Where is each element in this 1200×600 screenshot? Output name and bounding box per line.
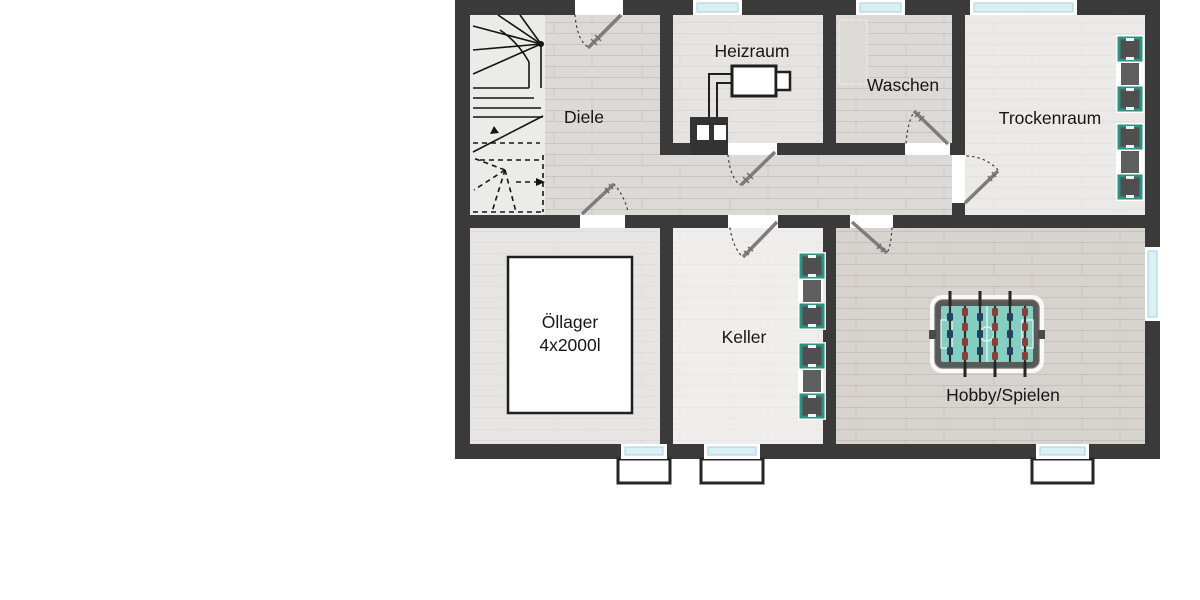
- wall-oellager-keller: [660, 228, 673, 444]
- exterior-wall-left: [455, 0, 470, 459]
- light-well-oellager: [618, 459, 670, 483]
- window-top-waschen: [856, 0, 905, 15]
- appliance-icon: [1119, 126, 1141, 148]
- window-bottom-keller: [704, 444, 760, 459]
- window-top-trockenraum: [970, 0, 1077, 15]
- wall-waschen-trockenraum: [952, 15, 965, 153]
- room-label-diele: Diele: [564, 107, 604, 127]
- appliance-group-keller-1: [798, 252, 826, 330]
- window-bottom-oellager: [621, 444, 667, 459]
- appliance-icon: [801, 395, 823, 417]
- wall-heizraum-waschen: [823, 15, 836, 155]
- entrance-opening: [575, 0, 623, 15]
- window-top-heizraum: [693, 0, 742, 15]
- wall-diele-heizraum: [660, 15, 673, 155]
- window-bottom-hobby: [1036, 444, 1089, 459]
- waschen-appliance-icon: [839, 20, 867, 84]
- foosball-table-icon: [929, 291, 1045, 377]
- wall-hall-bottom-4: [893, 215, 1145, 228]
- wall-hall-bottom-1: [470, 215, 580, 228]
- wall-hall-top-2: [777, 143, 905, 155]
- room-label-heizraum: Heizraum: [715, 41, 790, 61]
- room-label-keller: Keller: [722, 327, 767, 347]
- appliance-icon: [1121, 151, 1139, 173]
- wall-hall-bottom-2: [625, 215, 728, 228]
- room-label-hobby: Hobby/Spielen: [946, 385, 1060, 405]
- wall-hall-bottom-3: [778, 215, 850, 228]
- exterior-wall-right: [1145, 0, 1160, 459]
- appliance-icon: [1119, 38, 1141, 60]
- appliance-icon: [801, 305, 823, 327]
- appliance-icon: [1121, 63, 1139, 85]
- appliance-icon: [801, 345, 823, 367]
- wall-hall-top-3: [950, 143, 965, 155]
- appliance-icon: [801, 255, 823, 277]
- window-right-hobby: [1145, 247, 1160, 321]
- room-label-trockenraum: Trockenraum: [999, 108, 1101, 128]
- appliance-icon: [1119, 176, 1141, 198]
- floorplan-page: Diele Heizraum Waschen Trockenraum Öllag…: [0, 0, 1200, 600]
- light-well-keller: [701, 459, 763, 483]
- appliance-icon: [803, 370, 821, 392]
- appliance-group-trockenraum-1: [1116, 35, 1144, 113]
- light-well-hobby: [1032, 459, 1093, 483]
- room-label-oellager-line2: 4x2000l: [539, 335, 600, 355]
- room-label-waschen: Waschen: [867, 75, 939, 95]
- appliance-icon: [803, 280, 821, 302]
- room-label-oellager-line1: Öllager: [542, 312, 599, 332]
- floorplan-svg: Diele Heizraum Waschen Trockenraum Öllag…: [0, 0, 1200, 600]
- appliance-group-trockenraum-2: [1116, 123, 1144, 201]
- appliance-icon: [1119, 88, 1141, 110]
- appliance-group-keller-2: [798, 342, 826, 420]
- chimney-icon: [690, 117, 728, 155]
